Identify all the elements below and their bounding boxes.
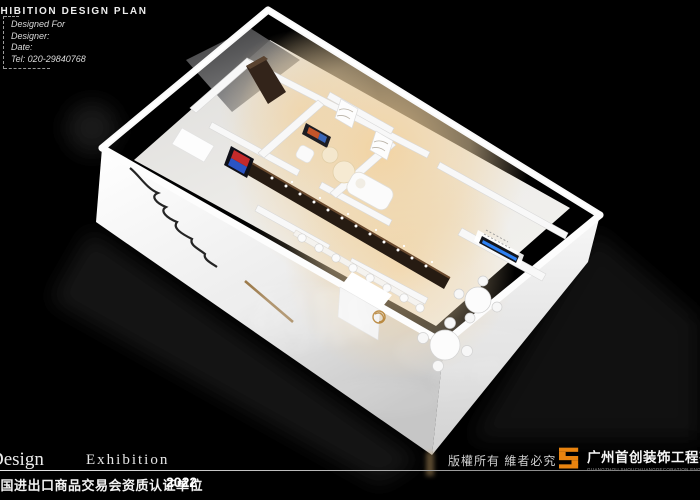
company-name-en: GUANGZHOU SHOUCHUANGDECORATION ENGINEERI… bbox=[587, 467, 700, 472]
company-logo-icon bbox=[556, 446, 582, 471]
copyright-text: 版權所有 維者必究 bbox=[448, 452, 556, 469]
brand-design-text: Design bbox=[0, 449, 44, 471]
design-board: { "header": { "title": "EXHIBITION DESIG… bbox=[0, 0, 700, 500]
designer-info-box: Designed For Designer: Date: Tel: 020-29… bbox=[3, 16, 96, 69]
year-text: 2022 bbox=[166, 474, 197, 490]
booth-3d-render: 创展 创展 bbox=[0, 0, 700, 500]
designed-for-label: Designed For bbox=[11, 19, 86, 31]
ottoman bbox=[322, 147, 338, 163]
base-glow bbox=[426, 452, 434, 476]
brand-exhibition-text: Exhibition bbox=[86, 452, 169, 469]
company-name-block: 广州首创装饰工程有限公司 GUANGZHOU SHOUCHUANGDECORAT… bbox=[587, 446, 700, 472]
designer-label: Designer: bbox=[11, 31, 86, 43]
company-name-cn: 广州首创装饰工程有限公司 bbox=[587, 446, 700, 466]
date-label: Date: bbox=[11, 42, 86, 54]
tel-label: Tel: 020-29840768 bbox=[11, 54, 86, 66]
